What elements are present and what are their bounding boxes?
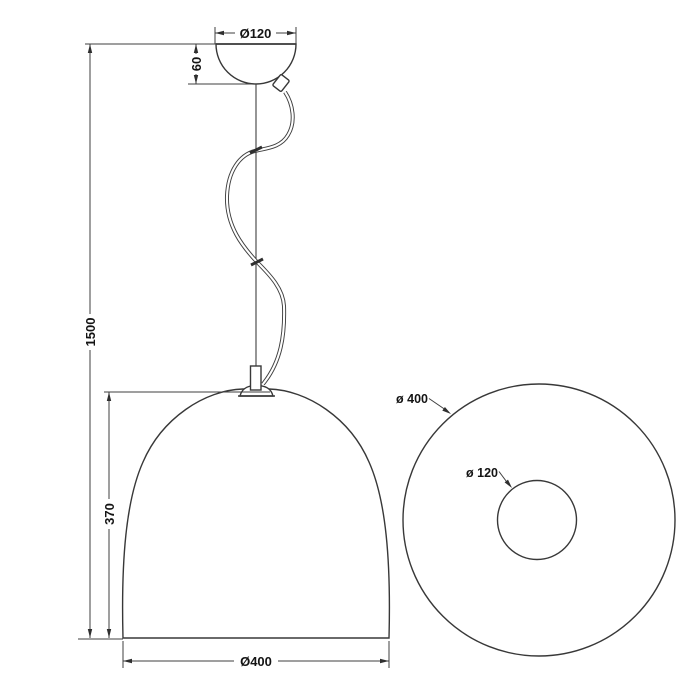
arrowhead-left [215,31,224,35]
label-inner-diameter: ø 120 [466,466,512,488]
overall-height-value: 1500 [83,318,98,347]
top-view: ø 400 ø 120 [396,384,675,656]
arrowhead-up [194,44,198,53]
shade-bell-outline [123,388,390,638]
arrowhead-down [107,629,111,638]
outer-diameter-value: ø 400 [396,392,428,406]
canopy-diameter-value: Ø120 [240,26,272,41]
shade-height-value: 370 [102,503,117,525]
dimension-shade-height: 370 [102,392,117,638]
arrowhead-right [380,659,389,663]
arrowhead-up [88,44,92,53]
label-outer-diameter: ø 400 [396,392,451,414]
canopy-height-value: 60 [189,57,204,71]
dimension-canopy-diameter: Ø120 [215,26,296,41]
power-cable [227,92,293,384]
arrowhead-up [107,392,111,401]
arrowhead-left [123,659,132,663]
front-view: Ø120 60 1500 [78,26,389,669]
inner-diameter-value: ø 120 [466,466,498,480]
lamp-shade [123,366,390,638]
shade-diameter-value: Ø400 [240,654,272,669]
arrowhead-down [88,629,92,638]
lamp-socket [251,366,262,390]
drawing-canvas: Ø120 60 1500 [0,0,700,700]
arrowhead-right [287,31,296,35]
pendant-lamp-dimension-drawing: Ø120 60 1500 [0,0,700,700]
top-view-inner-circle [498,481,577,560]
top-view-outer-circle [403,384,675,656]
dimension-canopy-height: 60 [189,44,204,84]
arrowhead-down [194,75,198,84]
dimension-shade-diameter: Ø400 [123,654,389,669]
dimension-overall-height: 1500 [83,44,98,638]
